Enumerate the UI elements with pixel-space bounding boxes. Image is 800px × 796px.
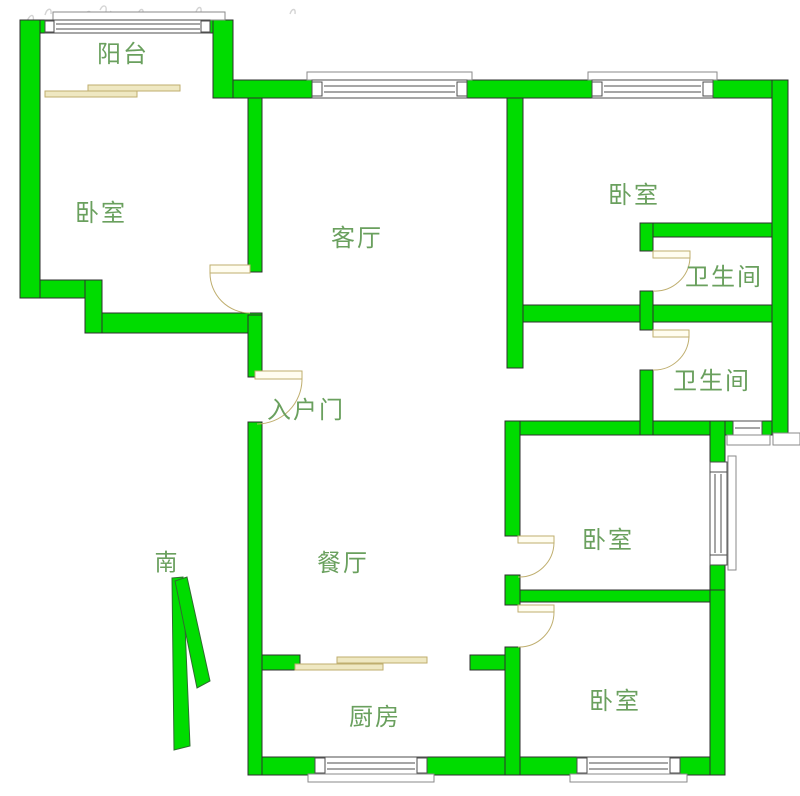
wall-segment <box>85 280 102 333</box>
window-sill <box>728 456 736 570</box>
window-jamb <box>457 82 467 96</box>
wall-segment <box>507 98 523 368</box>
sliding-door-balcony <box>45 85 180 97</box>
window-bay-right <box>710 456 736 570</box>
window-jamb <box>417 758 427 773</box>
door-swing-arc <box>653 337 689 370</box>
wall-segment <box>640 223 653 251</box>
sliding-door-panel <box>88 85 180 91</box>
window-bedroom-top-right <box>588 72 717 98</box>
door-bathroom-middle <box>653 330 689 370</box>
door-swing-arc <box>518 543 554 577</box>
wall-segment <box>517 590 713 602</box>
window-sill <box>588 72 717 80</box>
room-label-bedroom-middle-right: 卧室 <box>582 527 634 554</box>
room-label-bathroom-top: 卫生间 <box>685 264 763 291</box>
window-jamb <box>703 82 713 96</box>
sliding-door-kitchen <box>295 657 427 670</box>
door-leaf <box>653 330 689 337</box>
window-balcony <box>45 12 225 33</box>
window-frame <box>710 462 727 565</box>
window-kitchen <box>308 757 434 782</box>
window-jamb <box>312 82 322 96</box>
door-bedroom-middle-right <box>518 536 554 577</box>
window-sill <box>308 774 434 782</box>
window-sill <box>307 72 472 80</box>
window-jamb <box>710 555 727 565</box>
window-bedroom-bottom-right <box>570 757 687 782</box>
window-jamb <box>670 758 680 773</box>
wall-segment <box>505 421 733 435</box>
door-leaf <box>210 265 250 273</box>
doors <box>45 85 690 670</box>
door-leaf <box>518 605 554 612</box>
room-label-living-room: 客厅 <box>331 225 383 252</box>
south-label: 南 <box>155 550 178 575</box>
room-label-balcony: 阳台 <box>97 41 149 68</box>
window-jamb <box>315 758 325 773</box>
wall-segment <box>85 313 262 333</box>
sliding-door-panel <box>337 657 427 663</box>
wall-segment <box>248 315 262 377</box>
door-bedroom-left <box>210 265 250 313</box>
window-frame <box>45 20 210 33</box>
wall-segment <box>710 590 725 775</box>
wall-segment <box>640 223 788 237</box>
room-label-bedroom-top-right: 卧室 <box>608 182 660 209</box>
door-bedroom-bottom-right <box>518 605 554 647</box>
window-sill <box>570 774 687 782</box>
window-living-room <box>307 72 472 98</box>
window-frame <box>315 757 427 774</box>
sliding-door-panel <box>45 91 137 97</box>
wall-segment <box>640 291 653 330</box>
wall-segment <box>772 80 788 435</box>
door-leaf <box>518 536 554 543</box>
window-sill <box>53 12 225 20</box>
floor-plan: 阳台 卧室 客厅 卧室 卫生间 卫生间 入户门 餐厅 卧室 卧室 厨房 南 <box>0 0 800 796</box>
wall-segment <box>213 20 233 98</box>
wall-segment <box>505 421 520 536</box>
room-label-entrance: 入户门 <box>267 397 345 424</box>
door-swing-arc <box>518 612 554 647</box>
room-label-bedroom-left: 卧室 <box>75 200 127 227</box>
wall-ledge <box>773 433 800 445</box>
compass-south: 南 <box>155 550 211 750</box>
wall-segment <box>505 647 520 775</box>
window-frame <box>312 80 467 98</box>
window-frame <box>592 80 713 98</box>
wall-segment <box>20 20 40 298</box>
door-swing-arc <box>210 273 250 313</box>
wall-segment <box>248 98 262 272</box>
window-jamb <box>710 462 727 472</box>
sliding-door-panel <box>295 664 383 670</box>
window-jamb <box>577 758 587 773</box>
door-leaf <box>255 371 302 379</box>
room-label-dining-room: 餐厅 <box>317 550 369 577</box>
window-frame <box>577 757 680 774</box>
wall-segment <box>505 575 520 605</box>
wall-segment <box>248 422 262 775</box>
room-label-kitchen: 厨房 <box>349 704 401 731</box>
window-jamb <box>201 21 210 32</box>
door-leaf <box>653 251 690 258</box>
window-jamb <box>45 21 54 32</box>
wall-segment <box>427 757 577 775</box>
room-label-bedroom-bottom-right: 卧室 <box>589 688 641 715</box>
windows <box>45 12 800 782</box>
wall-segment <box>640 370 653 435</box>
wall-segment <box>467 80 592 98</box>
window-jamb <box>592 82 602 96</box>
wall-segment <box>710 421 725 462</box>
window-sill <box>727 435 770 445</box>
south-arrow <box>172 577 210 750</box>
room-label-bathroom-middle: 卫生间 <box>673 368 751 395</box>
